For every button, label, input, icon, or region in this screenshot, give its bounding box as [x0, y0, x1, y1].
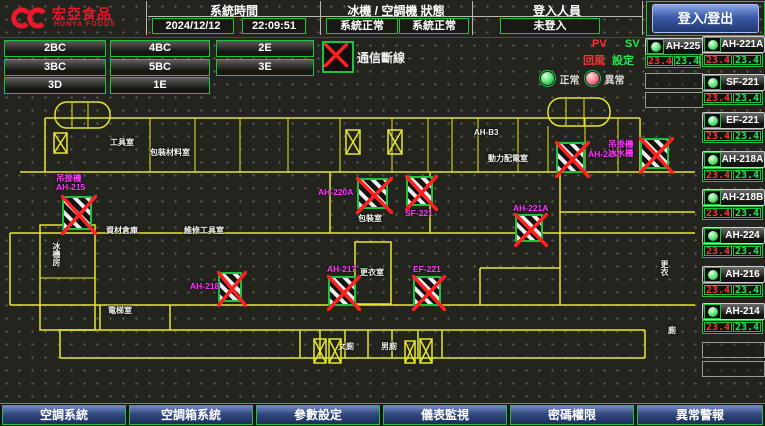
nav-button-儀表監視[interactable]: 儀表監視: [383, 405, 507, 425]
system-date-value: 2024/12/12: [152, 18, 234, 34]
room-label: 包裝室: [358, 214, 382, 223]
zone-button-2BC[interactable]: 2BC: [4, 40, 106, 57]
unit-name-label: AH-216: [721, 269, 764, 280]
pv-value: 23.4: [704, 285, 732, 295]
pv-value: 23.4: [647, 56, 673, 66]
company-name-en: HUNYA FOODS: [54, 21, 116, 28]
equipment-label-AH-220A: AH-220A: [318, 188, 353, 197]
legend-normal: 正常: [540, 70, 579, 88]
login-user-label: 登入人員: [472, 2, 642, 19]
room-label: 男廁: [381, 342, 397, 351]
unit-SF-221[interactable]: SF-221: [702, 74, 765, 91]
zone-button-3E[interactable]: 3E: [216, 59, 314, 76]
sv-desc-label: 設定: [612, 52, 634, 68]
nav-button-空調系統[interactable]: 空調系統: [2, 405, 126, 425]
equipment-AH-218[interactable]: [218, 272, 242, 302]
equipment-AH-217[interactable]: [328, 276, 356, 306]
status-lamp-holder: [704, 113, 721, 128]
divider: [642, 1, 643, 35]
equipment-label-SF-221: SF-221: [405, 209, 433, 218]
stair-x-icon: [313, 338, 327, 364]
unit-name-label: AH-214: [721, 306, 764, 317]
stair-x-icon: [387, 129, 403, 155]
unit-values-AH-216: 23.423.4: [702, 283, 763, 297]
unit-AH-218B[interactable]: AH-218B: [702, 189, 765, 206]
chiller-status-value: 系統正常: [326, 18, 398, 34]
status-lamp-icon: [708, 231, 718, 241]
status-lamp-icon: [708, 155, 718, 165]
equipment-SF-221[interactable]: [406, 176, 433, 206]
unit-values-AH-214: 23.423.4: [702, 320, 763, 334]
equipment-EF-221[interactable]: [413, 276, 441, 306]
sv-value: 23.4: [733, 322, 761, 332]
zone-button-5BC[interactable]: 5BC: [110, 59, 210, 76]
zone-button-4BC[interactable]: 4BC: [110, 40, 210, 57]
sv-value: 23.4: [733, 285, 761, 295]
unit-AH-214[interactable]: AH-214: [702, 303, 765, 320]
stair-x-icon: [404, 340, 416, 364]
unit-name-label: AH-221A: [721, 39, 764, 50]
unit-name-label: AH-218B: [721, 192, 764, 203]
company-logo-icon: [10, 3, 50, 33]
unit-name-label: AH-224: [721, 230, 764, 241]
pv-value: 23.4: [704, 208, 732, 218]
stair-x-icon: [345, 129, 361, 155]
pv-value: 23.4: [704, 322, 732, 332]
room-label: 工具室: [110, 138, 134, 147]
stair-x-icon: [328, 338, 342, 364]
unit-values-SF-221: 23.423.4: [702, 91, 763, 105]
equipment-label-chiller: 吊掛機冰水機: [608, 140, 634, 158]
status-lamp-holder: [647, 39, 664, 54]
unit-name-label: AH-218A: [721, 154, 764, 165]
pv-value: 23.4: [704, 170, 732, 180]
login-logout-button[interactable]: 登入/登出: [652, 4, 759, 33]
abnormal-label: 異常: [604, 75, 624, 86]
unit-values-EF-221: 23.423.4: [702, 129, 763, 143]
equipment-label-AH-221A: AH-221A: [513, 204, 548, 213]
sv-value: 23.4: [733, 170, 761, 180]
zone-button-3BC[interactable]: 3BC: [4, 59, 106, 76]
zone-button-2E[interactable]: 2E: [216, 40, 314, 57]
status-lamp-icon: [708, 116, 718, 126]
empty-slot: [702, 342, 765, 358]
unit-AH-224[interactable]: AH-224: [702, 227, 765, 244]
floor-plan: 吊掛機AH-215 AH-220A SF-221 AH-214 吊掛機冰水機 A…: [0, 92, 700, 403]
empty-slot: [645, 92, 703, 108]
status-lamp-holder: [704, 152, 721, 167]
unit-name-label: AH-225: [664, 41, 702, 52]
status-lamp-icon: [708, 78, 718, 88]
status-lamp-holder: [704, 190, 721, 205]
sv-value: 23.4: [733, 246, 761, 256]
unit-values-AH-225: 23.423.4: [645, 54, 701, 68]
equipment-AH-214[interactable]: [556, 142, 585, 173]
unit-name-label: EF-221: [721, 115, 764, 126]
equipment-AH-221A[interactable]: [515, 214, 543, 242]
sv-header: SV: [625, 38, 640, 50]
equipment-label-AH-215: 吊掛機AH-215: [56, 174, 85, 192]
unit-AH-218A[interactable]: AH-218A: [702, 151, 765, 168]
pv-value: 23.4: [704, 246, 732, 256]
unit-name-label: SF-221: [721, 77, 764, 88]
pv-header: PV: [592, 38, 607, 50]
unit-values-AH-218B: 23.423.4: [702, 206, 763, 220]
unit-values-AH-221A: 23.423.4: [702, 53, 763, 67]
equipment-AH-220A[interactable]: [357, 178, 388, 209]
nav-button-密碼權限[interactable]: 密碼權限: [510, 405, 634, 425]
room-label: 冰機房: [52, 242, 61, 266]
room-label: AH-B3: [474, 128, 498, 137]
login-cell: 登入/登出: [646, 1, 765, 36]
stair-x-icon: [53, 132, 68, 154]
sv-value: 23.4: [733, 208, 761, 218]
bottom-nav-bar: 空調系統空調箱系統參數設定儀表監視密碼權限異常警報: [0, 403, 765, 426]
system-clock-value: 22:09:51: [242, 18, 306, 34]
unit-values-AH-224: 23.423.4: [702, 244, 763, 258]
equipment-label-AH-218: AH-218: [190, 282, 219, 291]
legend-abnormal: 異常: [585, 70, 624, 88]
unit-AH-216[interactable]: AH-216: [702, 266, 765, 283]
top-bar: 宏亞食品 HUNYA FOODS 系統時間 冰機 / 空調機 狀態 登入人員 2…: [0, 0, 765, 38]
status-lamp-icon: [708, 40, 718, 50]
status-lamp-holder: [704, 75, 721, 90]
unit-AH-221A[interactable]: AH-221A: [702, 36, 765, 53]
chiller-ahu-status-label: 冰機 / 空調機 狀態: [320, 2, 472, 19]
unit-AH-225[interactable]: AH-225: [645, 38, 703, 55]
status-lamp-icon: [708, 307, 718, 317]
stair-x-icon: [419, 338, 433, 364]
room-label: 包裝材料室: [150, 148, 190, 157]
status-lamp-holder: [704, 267, 721, 282]
room-label: 更衣: [660, 260, 669, 276]
empty-slot: [702, 361, 765, 377]
pv-value: 23.4: [704, 55, 732, 65]
comm-disconnect-icon: [322, 41, 354, 73]
nav-button-參數設定[interactable]: 參數設定: [256, 405, 380, 425]
empty-slot: [645, 73, 703, 89]
divider: [146, 1, 147, 35]
room-label: 維修工具室: [184, 226, 224, 235]
room-label: 動力配電室: [488, 154, 528, 163]
status-lamp-icon: [708, 270, 718, 280]
equipment-chiller[interactable]: [640, 138, 669, 169]
sv-value: 23.4: [674, 56, 700, 66]
room-label: 更衣室: [360, 268, 384, 277]
status-lamp-holder: [704, 228, 721, 243]
unit-EF-221[interactable]: EF-221: [702, 112, 765, 129]
status-lamp-icon: [708, 193, 718, 203]
normal-label: 正常: [559, 75, 579, 86]
room-label: 廁: [668, 326, 676, 335]
ahu-status-value: 系統正常: [399, 18, 469, 34]
unit-values-AH-218A: 23.423.4: [702, 168, 763, 182]
equipment-label-EF-221: EF-221: [413, 265, 441, 274]
status-lamp-holder: [704, 37, 721, 52]
system-time-label: 系統時間: [148, 2, 320, 19]
status-lamp-icon: [651, 42, 661, 52]
sv-value: 23.4: [733, 93, 761, 103]
equipment-label-AH-217: AH-217: [327, 265, 356, 274]
status-lamp-holder: [704, 304, 721, 319]
sv-value: 23.4: [733, 55, 761, 65]
comm-disconnect-label: 通信斷線: [357, 49, 405, 66]
pv-value: 23.4: [704, 131, 732, 141]
equipment-AH-215[interactable]: [62, 196, 92, 230]
nav-button-異常警報[interactable]: 異常警報: [637, 405, 763, 425]
room-label: 電梯室: [108, 306, 132, 315]
login-user-value: 未登入: [500, 18, 600, 34]
abnormal-lamp-icon: [585, 71, 600, 86]
normal-lamp-icon: [540, 71, 555, 86]
hmi-screen: 宏亞食品 HUNYA FOODS 系統時間 冰機 / 空調機 狀態 登入人員 2…: [0, 0, 765, 426]
room-label: 資材倉庫: [106, 226, 138, 235]
pv-desc-label: 回風: [583, 52, 605, 68]
pv-value: 23.4: [704, 93, 732, 103]
nav-button-空調箱系統[interactable]: 空調箱系統: [129, 405, 253, 425]
sv-value: 23.4: [733, 131, 761, 141]
